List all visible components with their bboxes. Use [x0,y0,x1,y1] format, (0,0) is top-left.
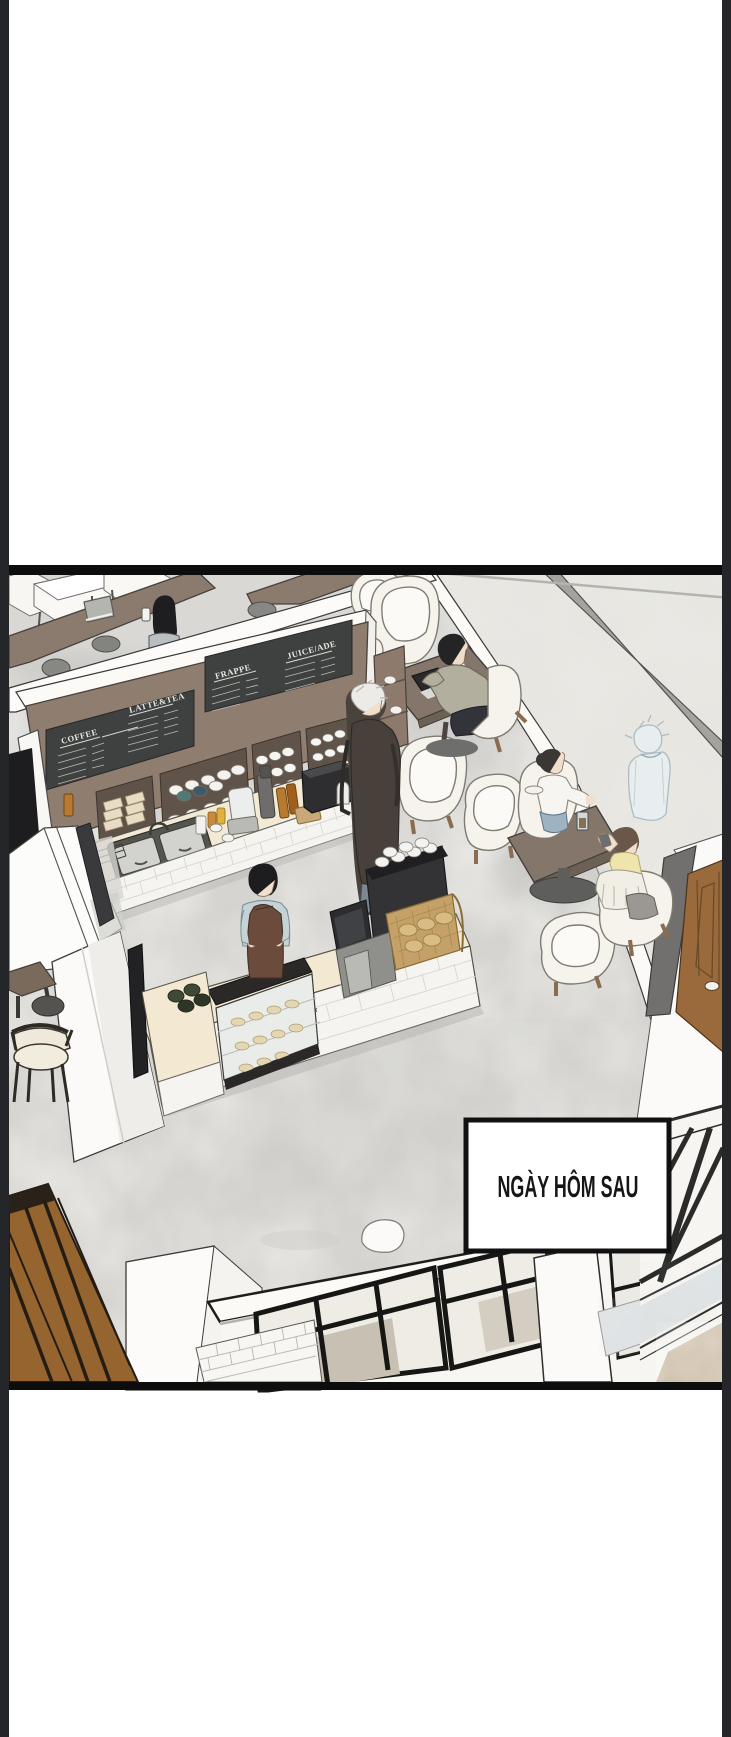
svg-text:NGÀY HÔM SAU: NGÀY HÔM SAU [498,1168,639,1204]
